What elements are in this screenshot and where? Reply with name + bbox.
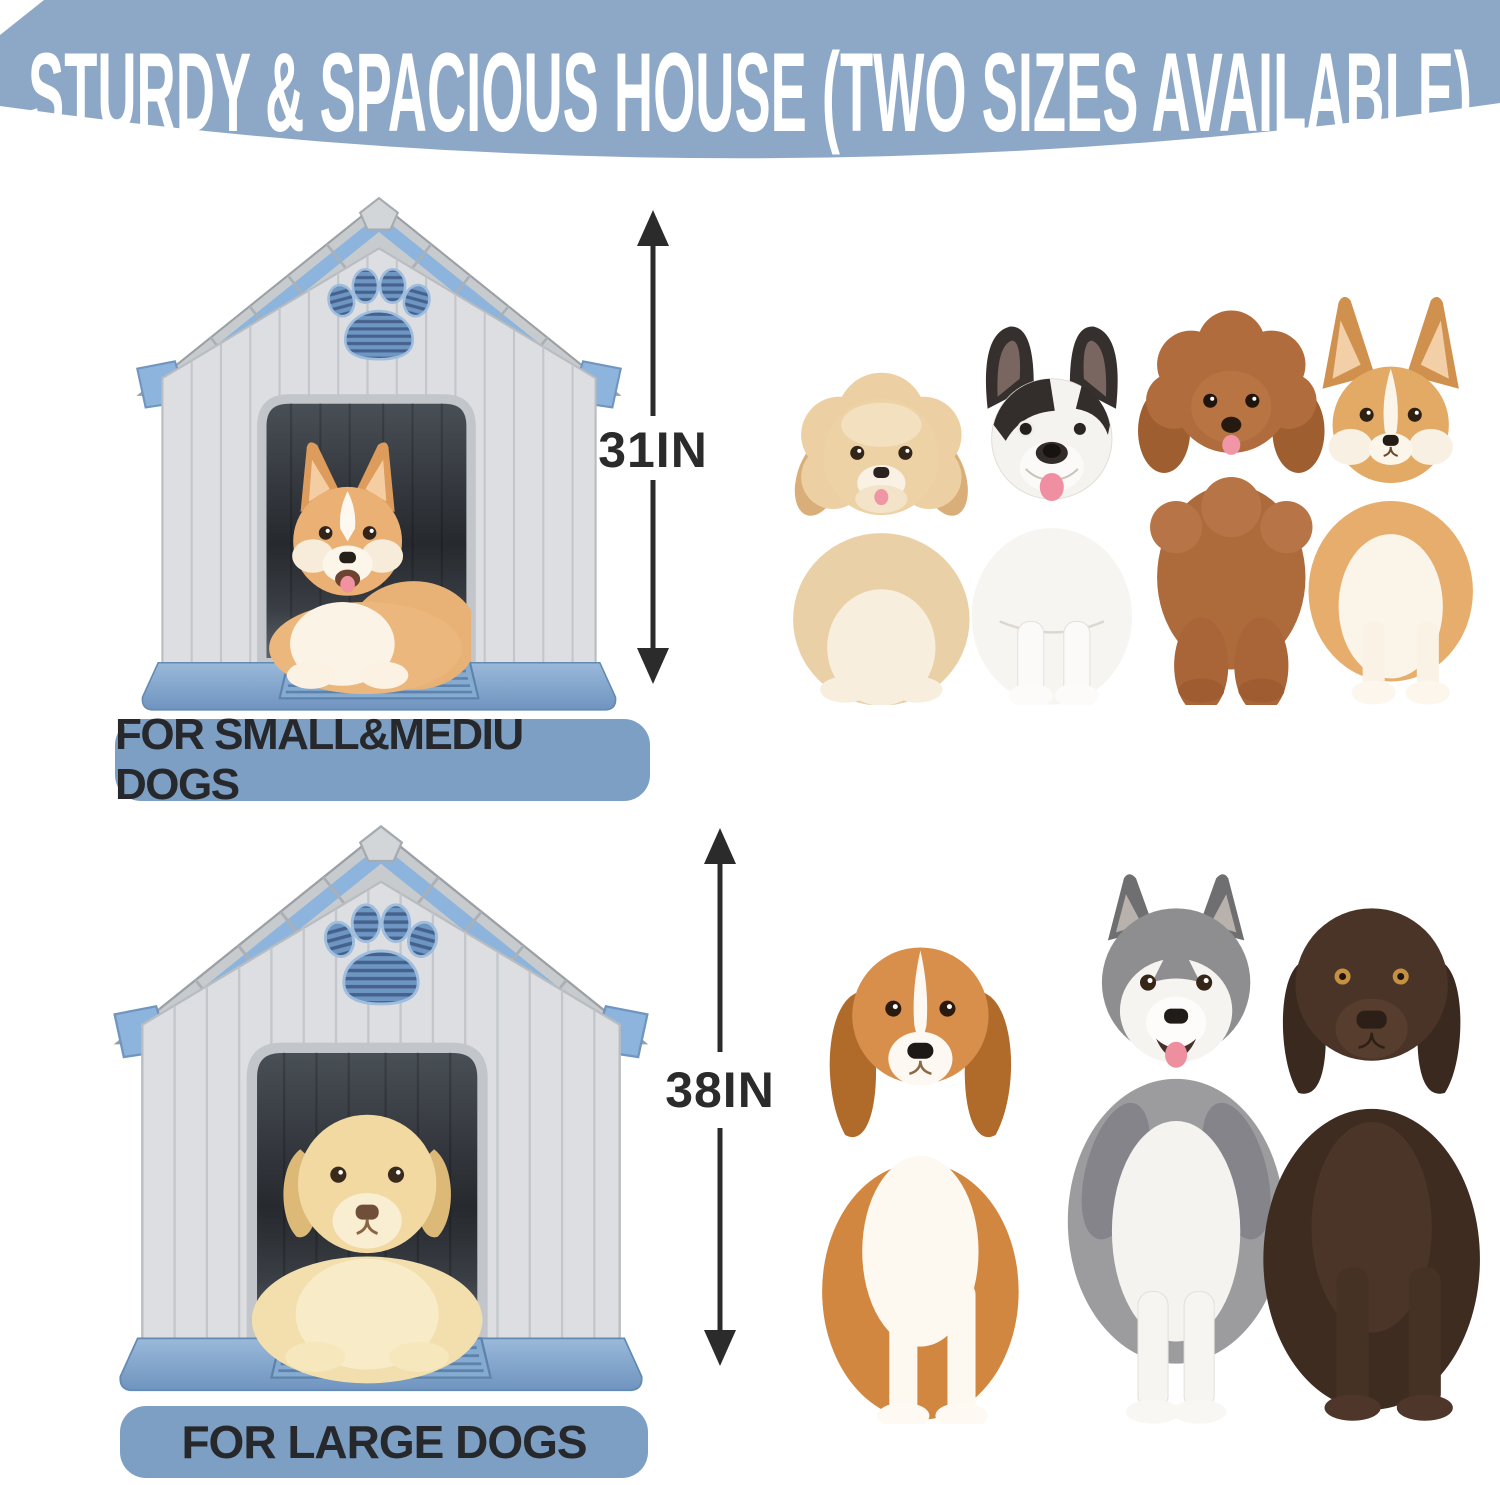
ridge-cap xyxy=(360,198,398,229)
small-dogs-photo-group xyxy=(763,268,1495,705)
banner-title: STURDY & SPACIOUS HOUSE (TWO SIZES AVAIL… xyxy=(28,30,1472,155)
caption-small-dogs: FOR SMALL&MEDIU DOGS xyxy=(115,719,650,801)
small-dog-house-illustration xyxy=(133,196,625,714)
dog-corgi xyxy=(1308,297,1472,705)
dog-french-bulldog xyxy=(972,326,1132,705)
caption-large-dogs: FOR LARGE DOGS xyxy=(120,1406,648,1478)
title-banner: STURDY & SPACIOUS HOUSE (TWO SIZES AVAIL… xyxy=(0,0,1500,215)
dog-toy-poodle xyxy=(1138,311,1325,705)
dog-havanese xyxy=(786,373,977,705)
dog-husky xyxy=(1068,874,1285,1424)
product-infographic: STURDY & SPACIOUS HOUSE (TWO SIZES AVAIL… xyxy=(0,0,1500,1485)
large-dog-house-illustration xyxy=(110,824,652,1395)
dog-chocolate-labrador xyxy=(1263,908,1480,1420)
large-dogs-photo-group xyxy=(783,862,1500,1424)
dog-beagle xyxy=(822,947,1019,1424)
height-value-large: 38IN xyxy=(642,1062,798,1118)
height-value-small: 31IN xyxy=(575,422,731,478)
ridge-cap xyxy=(360,826,402,861)
